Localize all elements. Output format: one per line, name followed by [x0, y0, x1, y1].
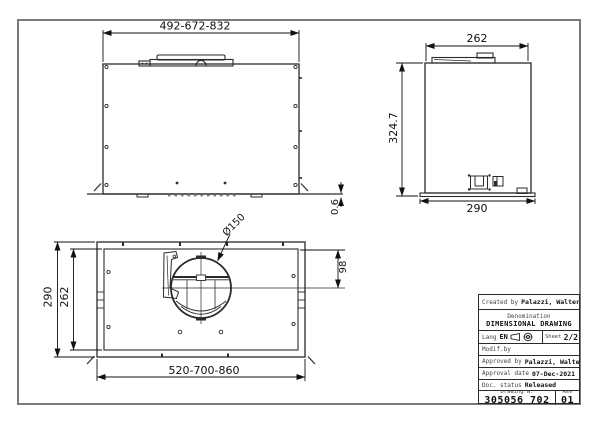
created-by-value: Palazzi, Walter	[521, 298, 579, 306]
side-height-dimension-text: 324.7	[387, 112, 400, 144]
doc-status-value: Released	[525, 381, 556, 389]
front-width-dimension-text: 492-672-832	[160, 20, 231, 33]
modif-by-row: Modif.by	[479, 344, 579, 356]
plan-width-dimension-text: 520-700-860	[169, 364, 240, 377]
lang-value: EN	[499, 333, 507, 341]
approval-date-row: Approval date 07-Dec-2021	[479, 368, 579, 380]
duct-outlet	[162, 252, 345, 324]
side-view	[420, 53, 535, 197]
rev-value: 01	[561, 396, 574, 405]
drawing-number-value: 305056 702	[484, 396, 549, 405]
side-bottom-width-dimension-text: 290	[467, 202, 488, 215]
panel-gap-dimension-text: 0.6	[330, 199, 341, 215]
side-body	[425, 63, 531, 193]
mounting-holes	[105, 65, 297, 186]
title-block: Created by Palazzi, Walter Denomination …	[478, 294, 580, 404]
sheet-value: 2/2	[564, 333, 578, 342]
side-top-width-dimension-text: 262	[467, 32, 488, 45]
front-body	[103, 64, 299, 194]
denomination-row: Denomination DIMENSIONAL DRAWING	[479, 310, 579, 331]
electrical-fittings	[468, 174, 503, 190]
created-by-row: Created by Palazzi, Walter	[479, 295, 579, 310]
denomination-value: DIMENSIONAL DRAWING	[486, 320, 572, 328]
projection-circles-icon	[523, 332, 533, 342]
duct-diameter-label-text: Ø150	[220, 211, 248, 239]
lang-label: Lang	[482, 334, 496, 341]
approved-by-row: Approved by Palazzi, Walter	[479, 356, 579, 368]
plan-inner-depth-dimension-text: 262	[58, 287, 71, 308]
modif-by-label: Modif.by	[482, 346, 511, 353]
plan-outer-depth-dimension-text: 290	[42, 287, 55, 308]
front-view	[87, 55, 343, 197]
side-height-dimension	[396, 63, 423, 196]
approval-date-label: Approval date	[482, 370, 529, 377]
doc-status-row: Doc. status Released	[479, 380, 579, 391]
approval-date-value: 07-Dec-2021	[532, 370, 575, 378]
projection-cone-icon	[510, 333, 521, 341]
approved-by-label: Approved by	[482, 358, 522, 365]
lang-sheet-row: Lang EN Sheet 2/2	[479, 331, 579, 344]
sheet-label: Sheet	[545, 334, 562, 340]
approved-by-value: Palazzi, Walter	[525, 358, 579, 366]
doc-status-label: Doc. status	[482, 382, 522, 389]
drawing-sheet: 492-672-832 0.6	[0, 0, 600, 425]
drawing-number-row: Drawing N. 305056 702 Rev 01	[479, 391, 579, 405]
duct-offset-dimension-text: 98	[338, 261, 349, 274]
plan-view	[87, 242, 345, 364]
denomination-label: Denomination	[507, 313, 550, 320]
front-width-dimension	[103, 30, 299, 62]
created-by-label: Created by	[482, 299, 518, 306]
